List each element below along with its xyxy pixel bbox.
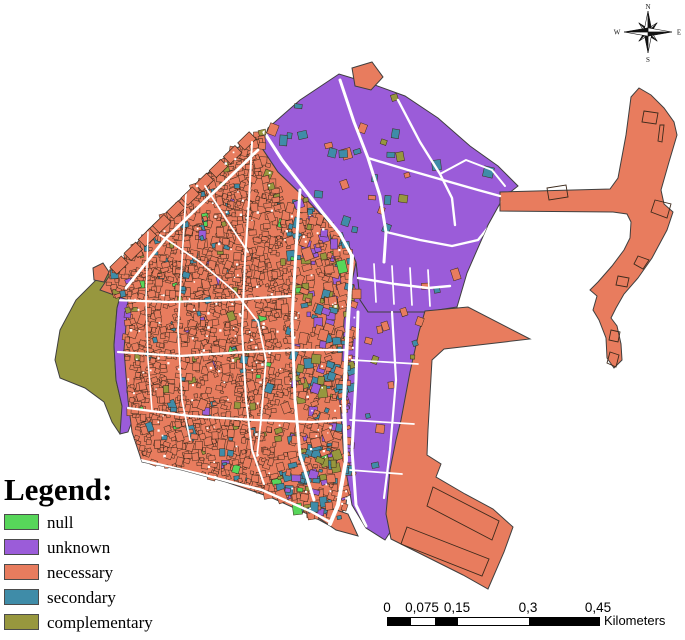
compass-rose: N E S W (605, 0, 685, 70)
legend-swatch-complementary (4, 614, 39, 630)
legend-label-secondary: secondary (47, 589, 116, 606)
compass-west-label: W (614, 29, 621, 37)
compass-east-label: E (677, 29, 681, 37)
scale-segment (411, 618, 434, 625)
legend-label-necessary: necessary (47, 564, 113, 581)
compass-star-icon (624, 11, 672, 53)
legend-item-unknown: unknown (4, 540, 153, 555)
scale-bar-graphic (387, 617, 600, 626)
legend-item-null: null (4, 515, 153, 530)
legend-swatch-null (4, 514, 39, 530)
compass-north-label: N (645, 3, 650, 11)
compass-south-label: S (646, 56, 650, 64)
scale-segment (458, 618, 528, 625)
legend-swatch-unknown (4, 539, 39, 555)
scale-bar: 0 0,075 0,15 0,3 0,45 Kilometers (385, 600, 685, 638)
legend-swatch-secondary (4, 589, 39, 605)
scale-tick-03: 0,3 (519, 600, 538, 615)
legend-title: Legend: (4, 474, 153, 507)
legend-item-necessary: necessary (4, 565, 153, 580)
scale-segment (435, 618, 458, 625)
legend-label-unknown: unknown (47, 539, 110, 556)
scale-segment (529, 618, 599, 625)
legend-label-null: null (47, 514, 73, 531)
district-harbor-quay-arm (500, 88, 677, 368)
scale-tick-0: 0 (383, 600, 391, 615)
legend-item-complementary: complementary (4, 615, 153, 630)
legend-label-complementary: complementary (47, 614, 153, 631)
legend-swatch-necessary (4, 564, 39, 580)
map-figure: N E S W Legend: null unknown necessary s… (0, 0, 685, 640)
scale-tick-015: 0,15 (444, 600, 470, 615)
legend: Legend: null unknown necessary secondary… (4, 474, 153, 640)
scale-segment (388, 618, 411, 625)
scale-unit-label: Kilometers (604, 613, 665, 628)
legend-item-secondary: secondary (4, 590, 153, 605)
scale-tick-0075: 0,075 (405, 600, 439, 615)
